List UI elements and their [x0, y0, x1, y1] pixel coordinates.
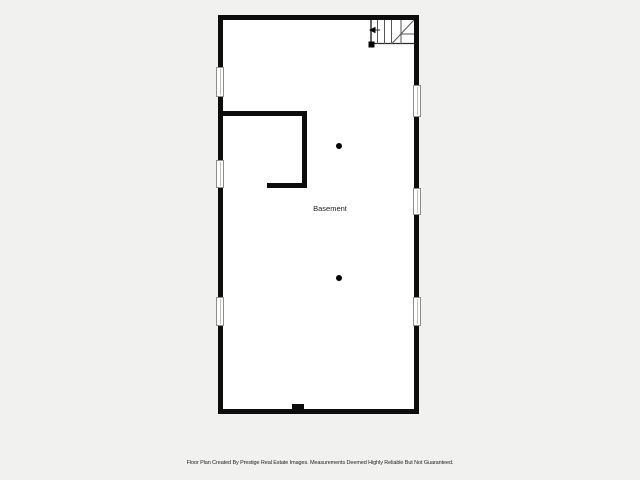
staircase: [0, 0, 640, 480]
stair-newel-post: [369, 42, 375, 48]
room-label: Basement: [280, 204, 380, 214]
floor-plan-page: Basement Floor Plan Created By Prestige …: [0, 0, 640, 480]
disclaimer-text: Floor Plan Created By Prestige Real Esta…: [0, 459, 640, 467]
stair-line: [392, 20, 415, 44]
stair-direction-arrow-icon: [369, 27, 376, 33]
